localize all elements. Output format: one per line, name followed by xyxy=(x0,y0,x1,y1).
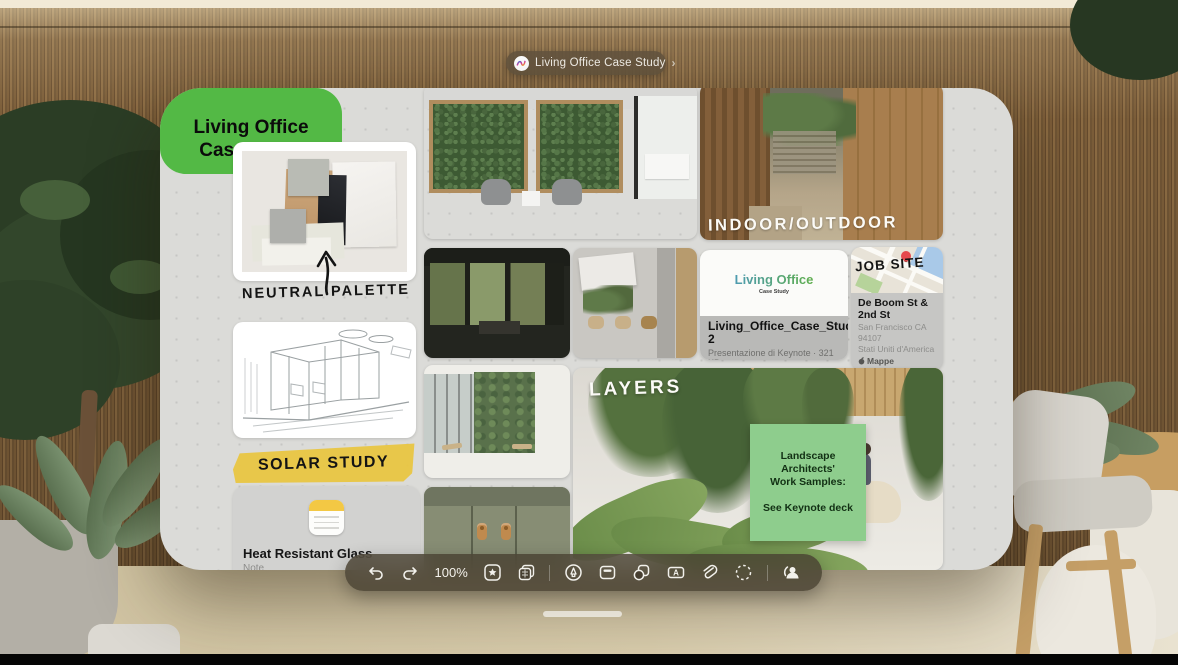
concrete-office-photo[interactable] xyxy=(573,248,697,358)
layers-label[interactable]: LAYERS xyxy=(589,376,683,401)
notes-app-icon xyxy=(309,500,344,535)
sticky-line: Architects' xyxy=(781,463,835,476)
window-drag-handle[interactable] xyxy=(543,611,622,617)
photo-detail xyxy=(512,444,532,449)
note-kind: Note xyxy=(243,563,264,570)
notes-icon-line xyxy=(314,516,339,518)
keynote-file-meta: Living_Office_Case_Study 2 Presentazione… xyxy=(700,316,848,360)
sticky-line: See Keynote deck xyxy=(763,502,853,515)
photo-detail xyxy=(583,285,633,318)
photo-detail xyxy=(474,372,535,453)
photo-detail xyxy=(641,316,657,329)
photo-detail xyxy=(645,154,689,179)
map-address: De Boom St & 2nd St xyxy=(858,297,936,321)
attachment-tool-button[interactable] xyxy=(699,562,721,584)
keynote-file-card[interactable]: Living Office Case Study Living_Office_C… xyxy=(700,250,848,360)
photo-detail xyxy=(634,96,697,198)
solar-study-annotation[interactable]: SOLAR STUDY xyxy=(234,445,414,483)
left-plant xyxy=(20,180,90,220)
solar-study-label: SOLAR STUDY xyxy=(258,453,390,474)
map-thumbnail: JOB SITE xyxy=(851,247,943,293)
svg-text:A: A xyxy=(673,569,679,578)
sticky-note-tool-button[interactable] xyxy=(596,562,618,584)
freeform-toolbar[interactable]: 100% A xyxy=(345,554,822,591)
living-wall xyxy=(536,100,623,193)
lounge-chair xyxy=(552,179,582,205)
map-location-card[interactable]: JOB SITE De Boom St & 2nd St San Francis… xyxy=(851,247,943,370)
visionos-scene: Living Office Case Study › Living Office… xyxy=(0,0,1178,665)
notes-icon-line xyxy=(314,527,339,529)
photo-detail xyxy=(657,248,674,358)
photo-detail xyxy=(615,316,631,329)
gray-swatch xyxy=(270,209,306,243)
living-wall xyxy=(429,100,527,193)
map-address-block: De Boom St & 2nd St San Francisco CA 941… xyxy=(851,293,943,370)
redo-button[interactable] xyxy=(399,562,421,584)
notes-icon-line xyxy=(314,522,339,524)
window-title-pill[interactable]: Living Office Case Study › xyxy=(506,51,666,75)
toolbar-divider xyxy=(767,565,768,581)
apple-logo-icon xyxy=(858,357,865,365)
green-sticky-note[interactable]: Landscape Architects' Work Samples: See … xyxy=(750,424,866,541)
map-city: San Francisco CA xyxy=(858,322,936,332)
freeform-app-icon xyxy=(514,56,529,71)
ceiling-seam xyxy=(0,26,1178,28)
shapes-tool-button[interactable] xyxy=(631,562,653,584)
photo-detail xyxy=(588,316,604,329)
notes-icon-band xyxy=(309,500,344,511)
sticky-line: Work Samples: xyxy=(770,476,846,489)
office-sketch-card[interactable] xyxy=(233,322,416,438)
photo-detail xyxy=(424,374,474,453)
lounge-chair xyxy=(481,179,511,205)
window-title: Living Office Case Study xyxy=(535,57,666,69)
draw-tool-button[interactable] xyxy=(562,562,584,584)
photo-detail xyxy=(479,321,520,334)
toolbar-divider xyxy=(549,565,550,581)
gray-swatch xyxy=(288,159,329,195)
share-button[interactable] xyxy=(780,562,802,584)
glass-interior-photo[interactable] xyxy=(424,248,570,358)
photo-detail xyxy=(773,131,836,175)
neutral-palette-label[interactable]: NEUTRAL PALETTE xyxy=(230,281,422,302)
text-box-tool-button[interactable]: A xyxy=(665,562,687,584)
keynote-file-kind: Presentazione di Keynote · 321 KB xyxy=(708,348,840,360)
ceiling-light-strip xyxy=(0,0,1178,8)
photo-detail xyxy=(676,248,697,358)
undo-button[interactable] xyxy=(365,562,387,584)
sticky-line: Landscape xyxy=(781,450,836,463)
hanging-vine xyxy=(899,368,943,501)
indoor-outdoor-walkway-photo[interactable]: INDOOR/OUTDOOR xyxy=(700,88,943,240)
chevron-right-icon[interactable]: › xyxy=(672,56,676,70)
side-table xyxy=(522,191,540,206)
photo-detail xyxy=(430,263,564,325)
letterbox-bar xyxy=(0,654,1178,665)
architectural-sketch xyxy=(233,322,416,438)
board-title-line1: Living Office xyxy=(193,116,308,139)
zoom-level-button[interactable]: 100% xyxy=(433,565,469,580)
map-provider: Mappe xyxy=(867,356,894,366)
templates-button[interactable] xyxy=(481,562,503,584)
terrace-green-wall-photo[interactable] xyxy=(424,365,570,478)
freeform-board-canvas[interactable]: Living Office Case Study NEUTRAL PALETTE xyxy=(160,88,1013,570)
indoor-outdoor-label[interactable]: INDOOR/OUTDOOR xyxy=(708,213,898,235)
map-zip: 94107 xyxy=(858,333,936,343)
cabinet-pull xyxy=(501,523,511,540)
duplicate-button[interactable] xyxy=(515,562,537,584)
select-tool-button[interactable] xyxy=(733,562,755,584)
keynote-thumbnail: Living Office Case Study xyxy=(700,250,848,316)
cabinet-pull xyxy=(477,523,487,540)
photo-detail xyxy=(424,487,570,506)
keynote-thumb-subtitle: Case Study xyxy=(759,289,789,295)
keynote-thumb-title: Living Office xyxy=(735,272,814,287)
keynote-filename: Living_Office_Case_Study 2 xyxy=(708,320,840,346)
green-wall-lounge-photo[interactable] xyxy=(424,88,697,239)
map-country: Stati Uniti d'America xyxy=(858,344,936,354)
